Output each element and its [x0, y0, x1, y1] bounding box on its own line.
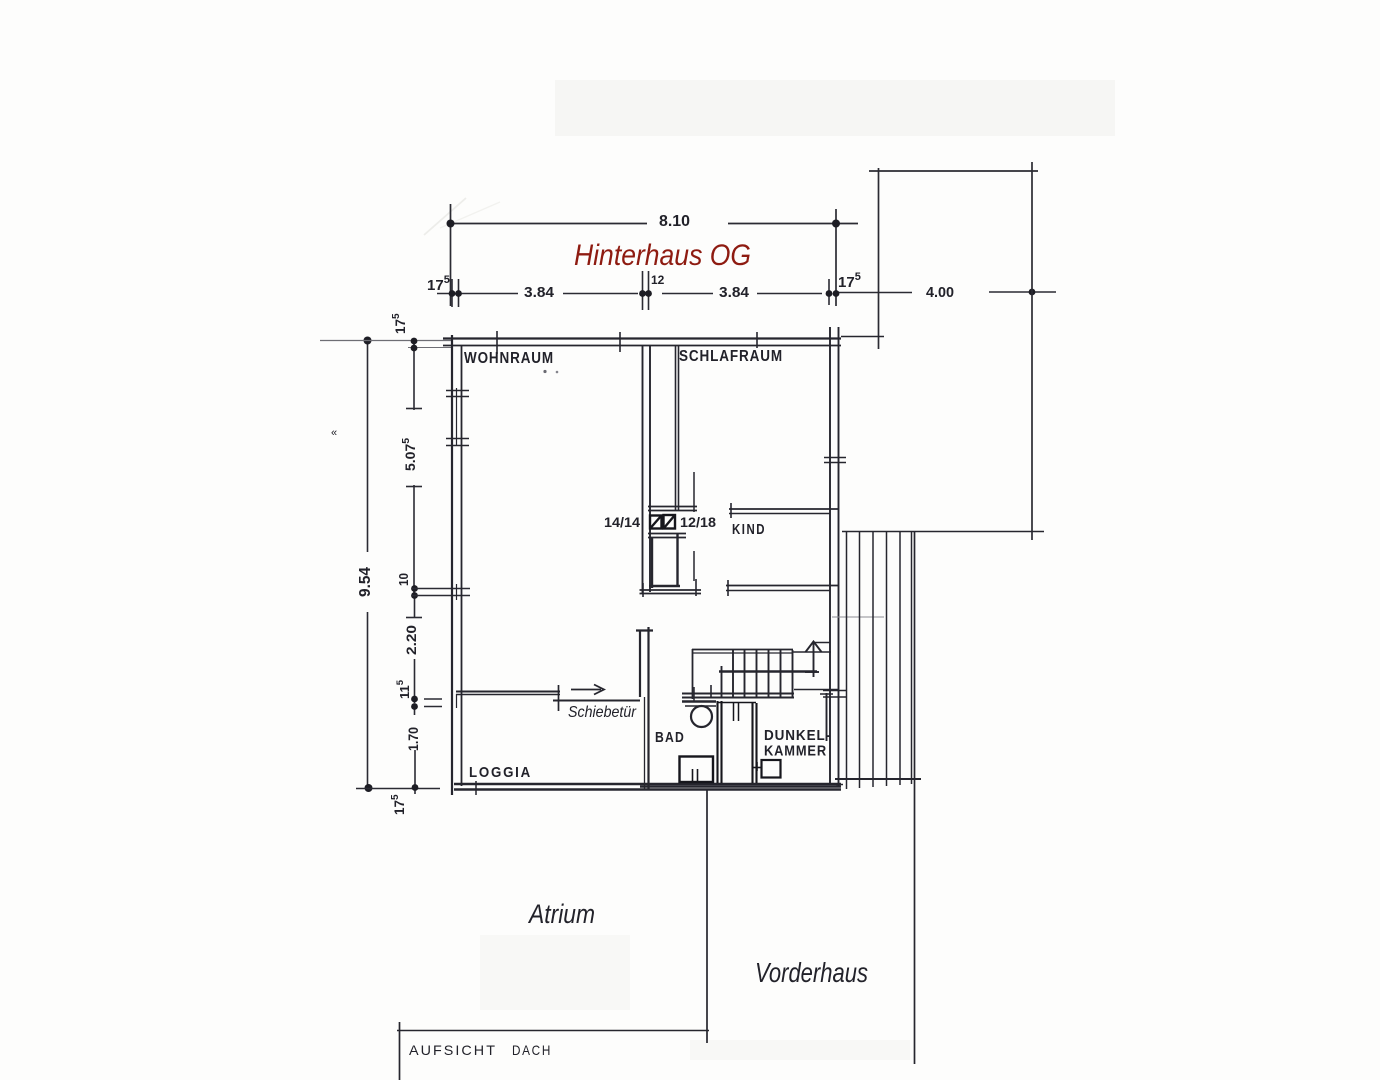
svg-text:Atrium: Atrium: [527, 899, 595, 929]
svg-text:14/14: 14/14: [604, 515, 641, 530]
svg-text:8.10: 8.10: [659, 213, 690, 230]
svg-text:SCHLAFRAUM: SCHLAFRAUM: [679, 348, 783, 365]
svg-text:1.70: 1.70: [405, 727, 421, 751]
svg-text:2.20: 2.20: [403, 625, 419, 655]
svg-text:LOGGIA: LOGGIA: [469, 764, 532, 781]
svg-text:Schiebetür: Schiebetür: [568, 704, 637, 721]
svg-text:9.54: 9.54: [357, 567, 374, 597]
svg-text:WOHNRAUM: WOHNRAUM: [464, 350, 554, 367]
svg-text:12: 12: [651, 273, 665, 287]
svg-text:Hinterhaus OG: Hinterhaus OG: [574, 239, 751, 272]
svg-text:3.84: 3.84: [524, 285, 554, 301]
svg-text:DACH: DACH: [512, 1042, 552, 1058]
svg-text:KIND: KIND: [732, 521, 766, 538]
svg-text:12/18: 12/18: [680, 515, 717, 530]
svg-text:DUNKEL-: DUNKEL-: [764, 727, 831, 744]
svg-text:«: «: [331, 427, 337, 439]
svg-text:KAMMER: KAMMER: [764, 743, 827, 760]
svg-text:3.84: 3.84: [719, 285, 749, 301]
svg-text:4.00: 4.00: [926, 285, 954, 301]
svg-text:BAD: BAD: [655, 729, 685, 746]
svg-text:AUFSICHT: AUFSICHT: [409, 1042, 497, 1058]
svg-text:Vorderhaus: Vorderhaus: [755, 957, 868, 988]
svg-text:10: 10: [396, 573, 411, 586]
